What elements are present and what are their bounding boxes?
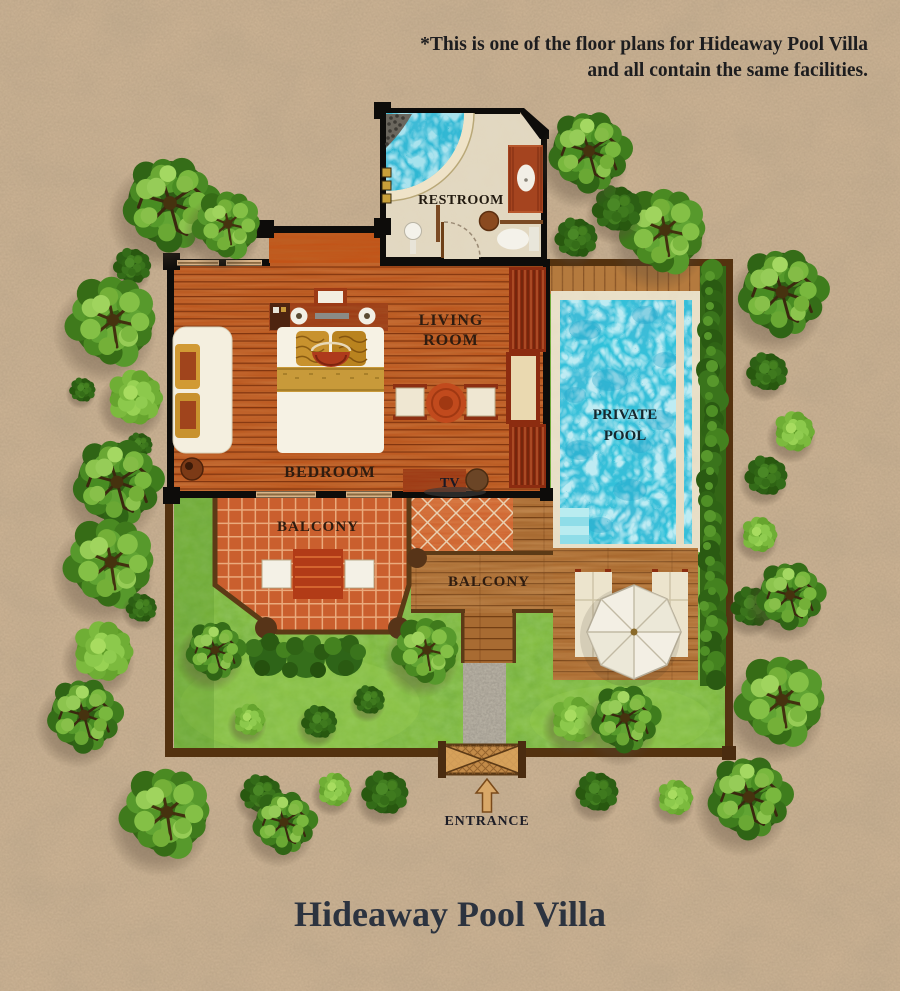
svg-text:POOL: POOL [604,428,647,444]
svg-text:and all contain the same facil: and all contain the same facilities. [587,60,868,81]
svg-text:Hideaway Pool Villa: Hideaway Pool Villa [294,894,606,934]
svg-text:ENTRANCE: ENTRANCE [445,814,530,829]
svg-text:TV: TV [440,476,459,491]
svg-text:BALCONY: BALCONY [277,519,359,535]
svg-text:PRIVATE: PRIVATE [593,407,657,423]
svg-text:LIVING: LIVING [419,312,484,329]
svg-text:ROOM: ROOM [423,332,479,349]
svg-text:RESTROOM: RESTROOM [418,193,504,208]
svg-text:*This is one of the floor plan: *This is one of the floor plans for Hide… [420,34,868,55]
svg-text:BALCONY: BALCONY [448,574,530,590]
svg-text:BEDROOM: BEDROOM [284,464,375,481]
